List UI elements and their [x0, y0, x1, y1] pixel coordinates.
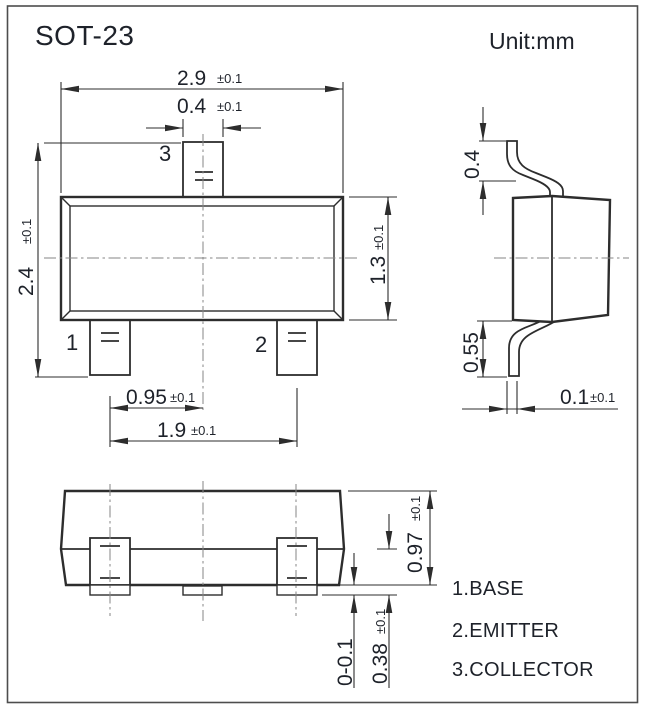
dim-tolerance: ±0.1	[217, 71, 242, 86]
pin-legend: 1.BASE 2.EMITTER 3.COLLECTOR	[452, 578, 594, 681]
unit-label: Unit:mm	[489, 28, 575, 54]
front-view	[61, 481, 344, 621]
legend-pin2: 2.EMITTER	[452, 620, 559, 642]
dim-value: 0.55	[460, 332, 483, 373]
pin1-pad	[90, 320, 130, 375]
dim-value: 1.3	[367, 256, 390, 285]
dim-tolerance: ±0.1	[371, 225, 386, 250]
legend-pin3: 3.COLLECTOR	[452, 659, 594, 681]
sot23-outline-drawing: SOT-23 Unit:mm 3 1 2	[0, 0, 645, 715]
dim-pin-width: 0.4 ±0.1	[146, 95, 261, 137]
dim-tolerance: ±0.1	[408, 496, 423, 521]
dim-value: 0.4	[461, 149, 484, 179]
top-view: 3 1 2	[44, 134, 359, 413]
bottom-lead	[509, 319, 557, 376]
dim-value: 0.95	[126, 386, 167, 409]
dim-value: 0.97	[404, 532, 427, 573]
legend-pin1: 1.BASE	[452, 578, 524, 600]
dim-value: 2.4	[15, 266, 38, 296]
dim-value: 0-0.1	[334, 638, 357, 686]
pin1-label: 1	[66, 330, 78, 355]
pin3-label: 3	[159, 141, 171, 166]
dim-value: 0.1	[560, 386, 589, 409]
dim-value: 1.9	[157, 419, 186, 442]
dim-value: 2.9	[177, 67, 206, 90]
dim-value: 0.38	[369, 643, 392, 684]
dim-tolerance: ±0.1	[217, 99, 242, 114]
dim-tolerance: ±0.1	[170, 390, 195, 405]
side-view	[494, 141, 629, 376]
dim-tolerance: ±0.1	[19, 219, 34, 244]
dim-tolerance: ±0.1	[590, 390, 615, 405]
dim-tolerance: ±0.1	[191, 423, 216, 438]
dim-tolerance: ±0.1	[373, 609, 388, 634]
side-body-outline	[513, 196, 610, 322]
dim-lead-thickness: 0.1 ±0.1	[462, 381, 618, 414]
dim-value: 0.4	[177, 95, 207, 118]
dim-lead-bottom: 0.55	[460, 321, 512, 377]
dim-front-lead-height: 0.38 ±0.1	[369, 514, 397, 688]
page-title: SOT-23	[35, 20, 134, 51]
package-drawing-page: SOT-23 Unit:mm 3 1 2	[0, 0, 645, 715]
pin2-label: 2	[255, 332, 267, 357]
top-lead	[507, 141, 563, 198]
pin2-pad	[277, 320, 317, 375]
front-lead2-foot	[277, 585, 317, 595]
